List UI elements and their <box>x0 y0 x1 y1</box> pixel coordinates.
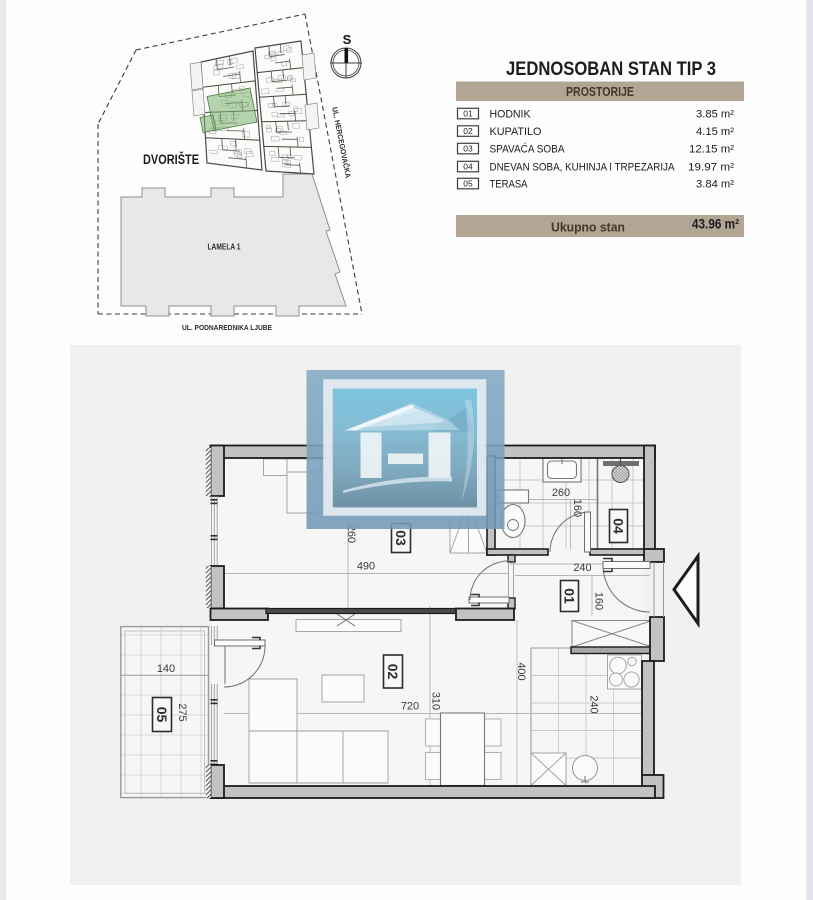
svg-text:S: S <box>343 32 352 47</box>
svg-text:260: 260 <box>552 487 570 499</box>
svg-text:DVORIŠTE: DVORIŠTE <box>143 152 199 167</box>
svg-text:03: 03 <box>393 530 409 546</box>
svg-text:05: 05 <box>154 707 170 723</box>
svg-text:05: 05 <box>463 179 473 189</box>
svg-text:240: 240 <box>573 562 591 574</box>
svg-text:SPAVAĆA SOBA: SPAVAĆA SOBA <box>490 143 566 156</box>
svg-text:DNEVAN SOBA, KUHINJA I TRPEZAR: DNEVAN SOBA, KUHINJA I TRPEZARIJA <box>490 162 676 174</box>
svg-text:JEDNOSOBAN STAN TIP 3: JEDNOSOBAN STAN TIP 3 <box>506 58 716 80</box>
svg-text:720: 720 <box>401 701 419 713</box>
svg-text:PROSTORIJE: PROSTORIJE <box>566 85 634 99</box>
svg-text:04: 04 <box>463 162 473 172</box>
svg-text:3.85 m²: 3.85 m² <box>696 109 734 121</box>
svg-text:Ukupno stan: Ukupno stan <box>551 220 625 235</box>
svg-text:3.84 m²: 3.84 m² <box>696 179 734 191</box>
svg-text:TERASA: TERASA <box>490 179 529 191</box>
svg-text:19.97 m²: 19.97 m² <box>688 162 734 174</box>
svg-text:HODNIK: HODNIK <box>490 109 532 121</box>
svg-text:310: 310 <box>430 692 442 710</box>
svg-text:UL. PODNAREDNIKA LJUBE: UL. PODNAREDNIKA LJUBE <box>182 323 272 332</box>
svg-text:02: 02 <box>463 126 473 136</box>
svg-text:02: 02 <box>385 664 401 680</box>
svg-text:03: 03 <box>463 144 473 154</box>
svg-text:43.96 m²: 43.96 m² <box>692 217 739 232</box>
svg-text:160: 160 <box>593 592 605 610</box>
svg-text:490: 490 <box>357 561 375 573</box>
svg-text:400: 400 <box>515 662 527 680</box>
svg-text:KUPATILO: KUPATILO <box>490 126 542 138</box>
svg-text:275: 275 <box>176 703 188 721</box>
svg-text:04: 04 <box>611 518 627 534</box>
svg-text:4.15 m²: 4.15 m² <box>696 126 734 138</box>
svg-text:01: 01 <box>463 109 473 119</box>
svg-text:01: 01 <box>562 588 578 604</box>
svg-text:140: 140 <box>157 663 175 675</box>
svg-text:240: 240 <box>588 695 600 713</box>
svg-text:12.15 m²: 12.15 m² <box>689 144 734 156</box>
svg-text:LAMELA 1: LAMELA 1 <box>208 243 241 252</box>
